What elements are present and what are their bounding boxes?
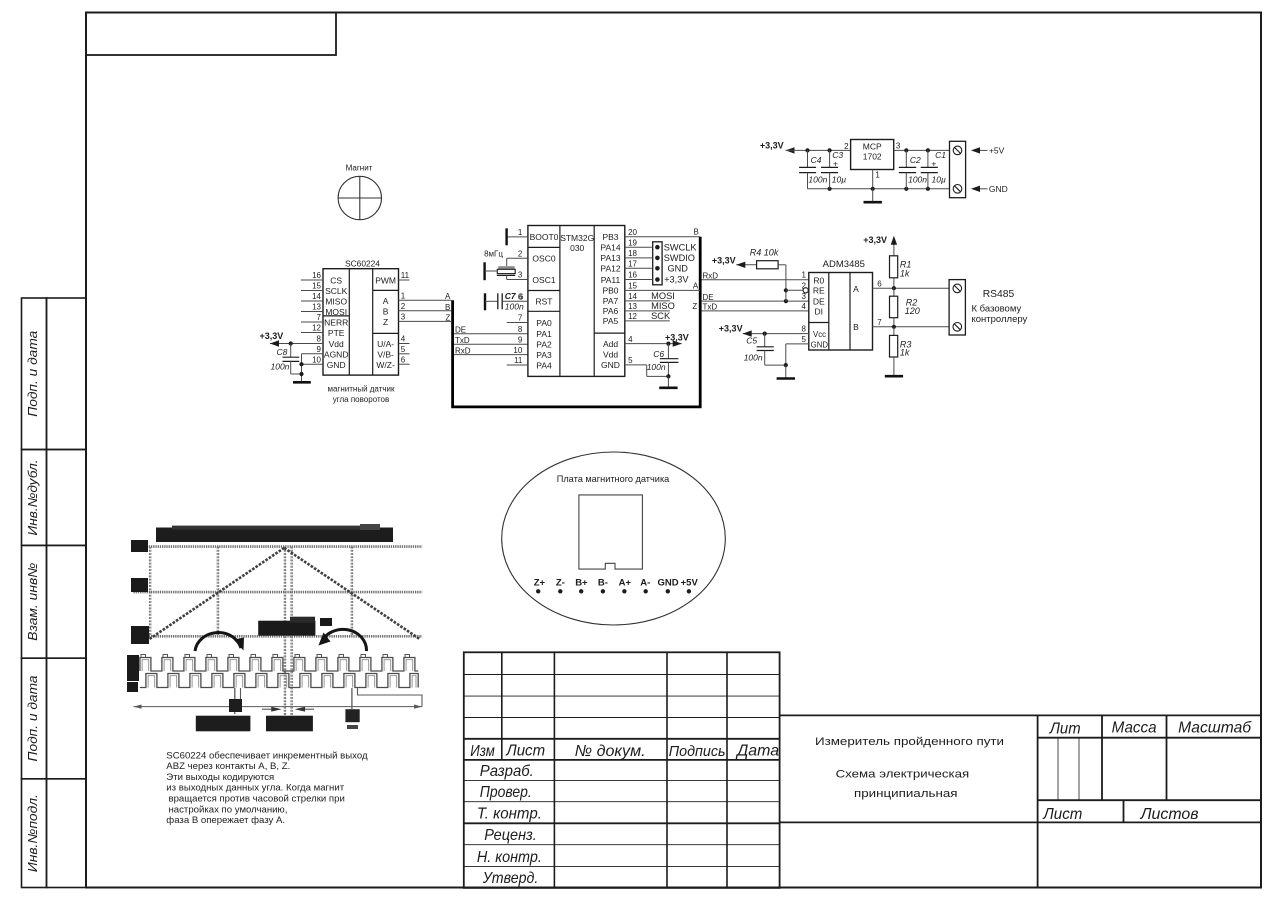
- svg-text:Инв.№дубл.: Инв.№дубл.: [25, 459, 40, 535]
- svg-text:RxD: RxD: [703, 271, 719, 280]
- svg-text:фаза В опережает фазу А.: фаза В опережает фазу А.: [166, 815, 285, 826]
- svg-text:Эти выходы кодируются: Эти выходы кодируются: [166, 772, 274, 783]
- svg-text:12: 12: [628, 312, 637, 321]
- svg-text:Z+: Z+: [534, 578, 546, 589]
- svg-text:B: B: [694, 228, 699, 237]
- svg-text:14: 14: [312, 292, 321, 301]
- svg-text:Изм: Изм: [470, 743, 495, 760]
- svg-text:8мГц: 8мГц: [484, 250, 503, 259]
- svg-text:Схема электрическая: Схема электрическая: [836, 769, 970, 781]
- svg-text:PA13: PA13: [600, 253, 620, 263]
- svg-text:9: 9: [518, 335, 523, 344]
- svg-text:GND: GND: [668, 264, 689, 274]
- svg-text:10µ: 10µ: [932, 174, 946, 184]
- svg-text:1: 1: [401, 292, 406, 301]
- svg-text:TxD: TxD: [703, 303, 718, 312]
- svg-text:Vdd: Vdd: [603, 349, 618, 359]
- svg-text:SWCLK: SWCLK: [664, 242, 698, 252]
- svg-text:100n: 100n: [271, 362, 290, 372]
- svg-text:19: 19: [628, 238, 637, 247]
- svg-text:PA0: PA0: [536, 318, 552, 328]
- svg-text:NERR: NERR: [324, 318, 348, 328]
- svg-text:PA2: PA2: [536, 340, 552, 350]
- svg-text:13: 13: [628, 302, 637, 311]
- svg-text:+3,3V: +3,3V: [664, 275, 689, 285]
- svg-text:100n: 100n: [647, 362, 666, 372]
- svg-text:C1: C1: [935, 150, 946, 160]
- svg-text:Z: Z: [692, 302, 697, 311]
- svg-text:Инв.№подл.: Инв.№подл.: [25, 794, 40, 872]
- svg-text:120: 120: [905, 306, 920, 316]
- svg-text:100n: 100n: [505, 301, 524, 311]
- svg-text:A-: A-: [640, 578, 650, 589]
- svg-text:RS485: RS485: [983, 289, 1015, 300]
- svg-text:17: 17: [628, 260, 637, 269]
- svg-text:Масштаб: Масштаб: [1178, 720, 1252, 737]
- svg-text:ABZ через контакты А, В, Z.: ABZ через контакты А, В, Z.: [166, 761, 290, 772]
- svg-text:RE: RE: [813, 286, 825, 296]
- svg-text:11: 11: [401, 271, 410, 280]
- svg-text:DE: DE: [813, 297, 825, 307]
- svg-text:Измеритель пройденного пути: Измеритель пройденного пути: [815, 736, 1004, 748]
- svg-text:16: 16: [628, 271, 637, 280]
- svg-text:20: 20: [628, 228, 637, 237]
- svg-text:7: 7: [518, 314, 523, 323]
- svg-text:2: 2: [802, 281, 807, 290]
- svg-text:+3,3V: +3,3V: [863, 235, 887, 245]
- svg-text:B: B: [853, 322, 859, 332]
- svg-text:+3,3V: +3,3V: [712, 255, 736, 265]
- svg-text:Z: Z: [445, 314, 450, 323]
- svg-text:из выходных данных угла. Когда: из выходных данных угла. Когда магнит: [166, 783, 344, 794]
- svg-text:Подпись: Подпись: [669, 743, 726, 760]
- svg-text:К базовому: К базовому: [972, 303, 1022, 314]
- svg-text:TxD: TxD: [455, 336, 470, 345]
- svg-text:+5V: +5V: [989, 145, 1005, 155]
- svg-text:Реценз.: Реценз.: [484, 827, 537, 844]
- svg-text:PA11: PA11: [601, 275, 621, 285]
- svg-text:настройках по умолчанию,: настройках по умолчанию,: [169, 804, 288, 815]
- svg-text:030: 030: [570, 243, 584, 253]
- svg-text:контроллеру: контроллеру: [972, 314, 1028, 325]
- svg-text:3: 3: [518, 271, 523, 280]
- svg-text:Лит: Лит: [1049, 720, 1081, 737]
- svg-text:MISO: MISO: [325, 297, 347, 307]
- svg-text:+3,3V: +3,3V: [260, 331, 284, 341]
- svg-text:1702: 1702: [863, 152, 882, 162]
- svg-text:PTE: PTE: [328, 328, 345, 338]
- svg-text:7: 7: [877, 318, 882, 327]
- svg-text:PWM: PWM: [375, 276, 396, 286]
- svg-text:10µ: 10µ: [832, 174, 846, 184]
- svg-text:R4 10k: R4 10k: [750, 248, 779, 258]
- svg-text:C8: C8: [277, 347, 288, 357]
- svg-text:PA4: PA4: [536, 360, 552, 370]
- svg-text:SCLK: SCLK: [325, 286, 348, 296]
- svg-text:вращается против часовой стрел: вращается против часовой стрелки при: [169, 794, 345, 805]
- svg-text:+3,3V: +3,3V: [719, 324, 743, 334]
- svg-text:GND: GND: [601, 360, 620, 370]
- svg-text:1: 1: [802, 271, 807, 280]
- svg-text:15: 15: [312, 282, 321, 291]
- svg-text:Листов: Листов: [1140, 806, 1199, 823]
- svg-text:Т. контр.: Т. контр.: [477, 806, 542, 823]
- svg-text:+: +: [833, 159, 838, 169]
- svg-text:8: 8: [518, 325, 523, 334]
- svg-text:PA3: PA3: [536, 350, 552, 360]
- svg-text:A: A: [445, 292, 451, 301]
- svg-text:8: 8: [317, 335, 322, 344]
- svg-text:C5: C5: [746, 336, 757, 346]
- svg-text:2: 2: [844, 142, 849, 151]
- svg-text:Vcc: Vcc: [813, 330, 826, 339]
- svg-text:9: 9: [317, 345, 322, 354]
- svg-text:8: 8: [802, 325, 807, 334]
- svg-text:PA1: PA1: [536, 329, 552, 339]
- svg-text:GND: GND: [327, 360, 346, 370]
- svg-text:3: 3: [802, 292, 807, 301]
- svg-text:+5V: +5V: [681, 578, 699, 589]
- svg-text:B-: B-: [598, 578, 608, 589]
- svg-text:R0: R0: [813, 275, 824, 285]
- svg-text:RST: RST: [536, 297, 553, 307]
- svg-text:1: 1: [518, 228, 523, 237]
- svg-text:ADM3485: ADM3485: [823, 259, 865, 270]
- svg-text:AGND: AGND: [324, 349, 349, 359]
- svg-text:16: 16: [312, 271, 321, 280]
- svg-text:SC60224 обеспечивает инкремент: SC60224 обеспечивает инкрементный выход: [166, 750, 368, 761]
- svg-text:угла поворотов: угла поворотов: [333, 395, 389, 404]
- svg-text:12: 12: [312, 324, 321, 333]
- svg-text:18: 18: [628, 249, 637, 258]
- svg-text:B: B: [445, 303, 450, 312]
- svg-text:3: 3: [401, 313, 406, 322]
- svg-text:Подп. и дата: Подп. и дата: [25, 331, 40, 417]
- svg-text:Дата: Дата: [735, 743, 779, 760]
- svg-text:MOSI: MOSI: [325, 307, 347, 317]
- svg-text:6: 6: [519, 292, 524, 301]
- svg-text:+3,3V: +3,3V: [760, 141, 784, 151]
- svg-text:BOOT0: BOOT0: [530, 232, 559, 242]
- svg-text:1k: 1k: [900, 268, 910, 278]
- svg-text:2: 2: [518, 250, 523, 259]
- svg-text:5: 5: [802, 335, 807, 344]
- svg-text:4: 4: [628, 335, 633, 344]
- svg-text:C2: C2: [910, 155, 921, 165]
- svg-text:10: 10: [513, 346, 522, 355]
- svg-text:1k: 1k: [900, 347, 910, 357]
- svg-text:Н. контр.: Н. контр.: [477, 849, 542, 866]
- svg-text:Магнит: Магнит: [346, 164, 373, 173]
- svg-text:100n: 100n: [808, 174, 827, 184]
- svg-text:Взам. инв№: Взам. инв№: [25, 563, 40, 641]
- svg-text:принципиальная: принципиальная: [854, 788, 958, 800]
- svg-text:+: +: [931, 159, 936, 169]
- svg-text:Масса: Масса: [1112, 720, 1157, 737]
- svg-text:PA14: PA14: [600, 243, 620, 253]
- svg-text:MISO: MISO: [651, 301, 675, 311]
- svg-text:Z: Z: [383, 317, 388, 327]
- svg-text:STM32G: STM32G: [560, 233, 594, 243]
- svg-text:PB0: PB0: [602, 286, 618, 296]
- svg-text:A: A: [693, 281, 699, 290]
- svg-text:W/Z-: W/Z-: [376, 360, 395, 370]
- svg-text:Подп. и дата: Подп. и дата: [25, 676, 40, 762]
- svg-text:GND: GND: [658, 578, 679, 589]
- svg-text:Z-: Z-: [556, 578, 565, 589]
- svg-text:5: 5: [401, 345, 406, 354]
- svg-text:Утверд.: Утверд.: [482, 870, 538, 887]
- svg-text:MOSI: MOSI: [651, 291, 675, 301]
- svg-text:DE: DE: [703, 293, 714, 302]
- svg-text:6: 6: [877, 279, 882, 288]
- svg-text:13: 13: [312, 303, 321, 312]
- svg-text:+3,3V: +3,3V: [665, 333, 689, 343]
- svg-text:Add: Add: [603, 339, 618, 349]
- svg-text:магнитный датчик: магнитный датчик: [327, 385, 395, 394]
- svg-text:C7: C7: [505, 291, 517, 301]
- svg-text:3: 3: [896, 141, 901, 150]
- svg-text:C6: C6: [653, 349, 664, 359]
- svg-text:PA7: PA7: [603, 296, 619, 306]
- svg-text:Vdd: Vdd: [329, 339, 344, 349]
- svg-text:№ докум.: № докум.: [575, 743, 646, 760]
- svg-text:PA6: PA6: [603, 306, 619, 316]
- svg-text:B+: B+: [575, 578, 588, 589]
- svg-text:100n: 100n: [908, 174, 927, 184]
- svg-text:A: A: [383, 296, 389, 306]
- svg-text:5: 5: [628, 356, 633, 365]
- svg-text:15: 15: [628, 282, 637, 291]
- svg-text:SCK: SCK: [651, 311, 671, 321]
- svg-text:14: 14: [628, 292, 637, 301]
- svg-text:Провер.: Провер.: [480, 784, 532, 801]
- svg-text:MCP: MCP: [863, 142, 882, 152]
- svg-text:OSC0: OSC0: [532, 254, 555, 264]
- svg-text:A+: A+: [619, 578, 632, 589]
- svg-text:CS: CS: [330, 276, 342, 286]
- svg-text:OSC1: OSC1: [532, 275, 555, 285]
- svg-text:2: 2: [401, 302, 406, 311]
- svg-text:PB3: PB3: [602, 232, 618, 242]
- svg-text:GND: GND: [811, 340, 829, 349]
- svg-text:U/A-: U/A-: [377, 339, 394, 349]
- svg-text:C4: C4: [811, 155, 822, 165]
- svg-text:PA12: PA12: [600, 264, 620, 274]
- svg-text:GND: GND: [989, 184, 1008, 194]
- svg-text:DI: DI: [815, 306, 824, 316]
- svg-text:1: 1: [875, 171, 880, 180]
- svg-text:B: B: [383, 306, 389, 316]
- svg-text:Лист: Лист: [505, 743, 545, 760]
- svg-text:PA5: PA5: [603, 316, 619, 326]
- svg-text:SWDIO: SWDIO: [664, 253, 695, 263]
- svg-text:DE: DE: [455, 326, 466, 335]
- svg-text:Разраб.: Разраб.: [480, 763, 534, 780]
- svg-text:10: 10: [312, 355, 321, 364]
- svg-text:A: A: [853, 284, 859, 294]
- svg-text:4: 4: [802, 302, 807, 311]
- svg-text:100n: 100n: [744, 353, 763, 363]
- svg-text:4: 4: [401, 335, 406, 344]
- svg-text:RxD: RxD: [455, 346, 471, 355]
- svg-text:Плата магнитного датчика: Плата магнитного датчика: [557, 474, 670, 484]
- svg-text:Лист: Лист: [1042, 806, 1082, 823]
- svg-text:6: 6: [401, 355, 406, 364]
- svg-text:7: 7: [317, 313, 322, 322]
- svg-text:SC60224: SC60224: [345, 258, 380, 268]
- svg-text:11: 11: [514, 356, 523, 365]
- svg-text:V/B-: V/B-: [377, 349, 394, 359]
